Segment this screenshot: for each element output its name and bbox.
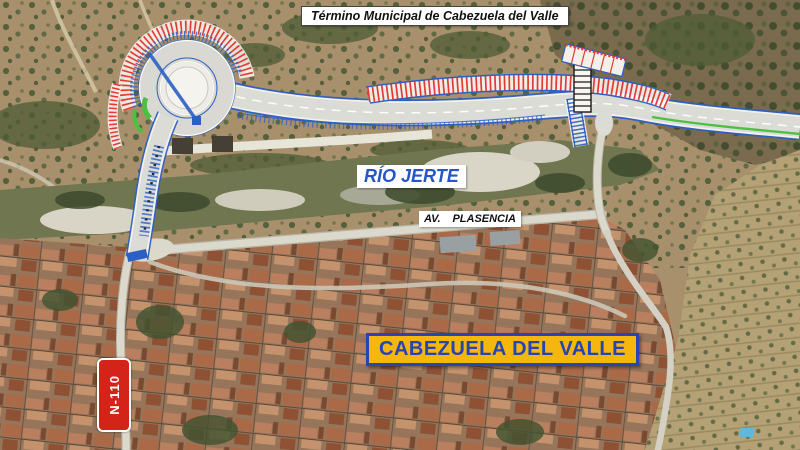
aerial-plan-map: Término Municipal de Cabezuela del Valle… xyxy=(0,0,800,450)
municipal-boundary-label: Término Municipal de Cabezuela del Valle xyxy=(301,6,569,26)
town-center-street xyxy=(150,262,625,316)
avenue-label-name: PLASENCIA xyxy=(452,213,516,225)
east-junction-patch xyxy=(595,110,613,136)
town-name-label: CABEZUELA DEL VALLE xyxy=(366,333,639,366)
avenue-label-prefix: AV. xyxy=(424,213,441,225)
n110-road-sign-text: N-110 xyxy=(107,375,122,415)
river-label: RÍO JERTE xyxy=(357,165,466,188)
roundabout xyxy=(113,27,247,148)
avenue-label: AV. PLASENCIA xyxy=(419,211,521,227)
new-main-road xyxy=(221,93,800,134)
stairs xyxy=(574,64,591,112)
section-marker xyxy=(192,116,201,125)
n110-road-sign-badge: N-110 xyxy=(97,358,131,432)
parking-bays xyxy=(562,44,627,76)
retaining-wall xyxy=(162,134,432,154)
